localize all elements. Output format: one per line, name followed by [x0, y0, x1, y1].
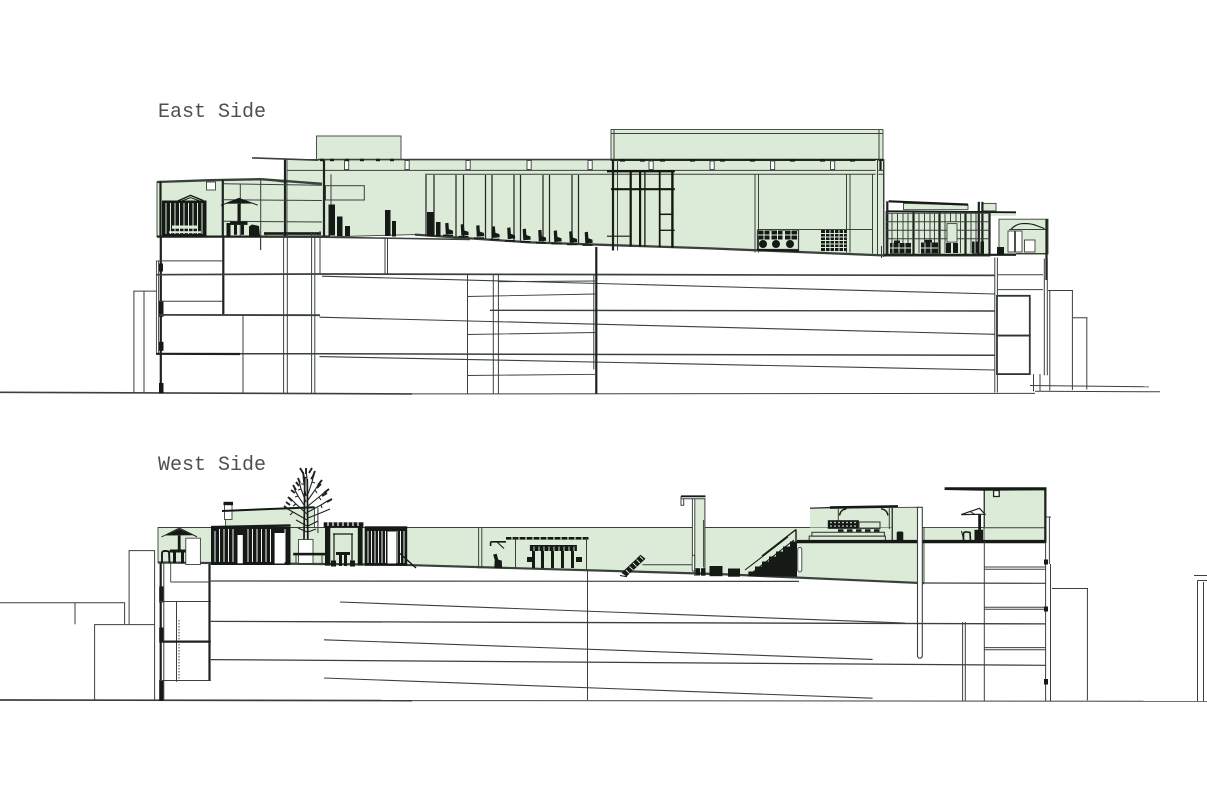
svg-text:West Side: West Side: [158, 454, 266, 477]
svg-text:East Side: East Side: [158, 101, 266, 124]
